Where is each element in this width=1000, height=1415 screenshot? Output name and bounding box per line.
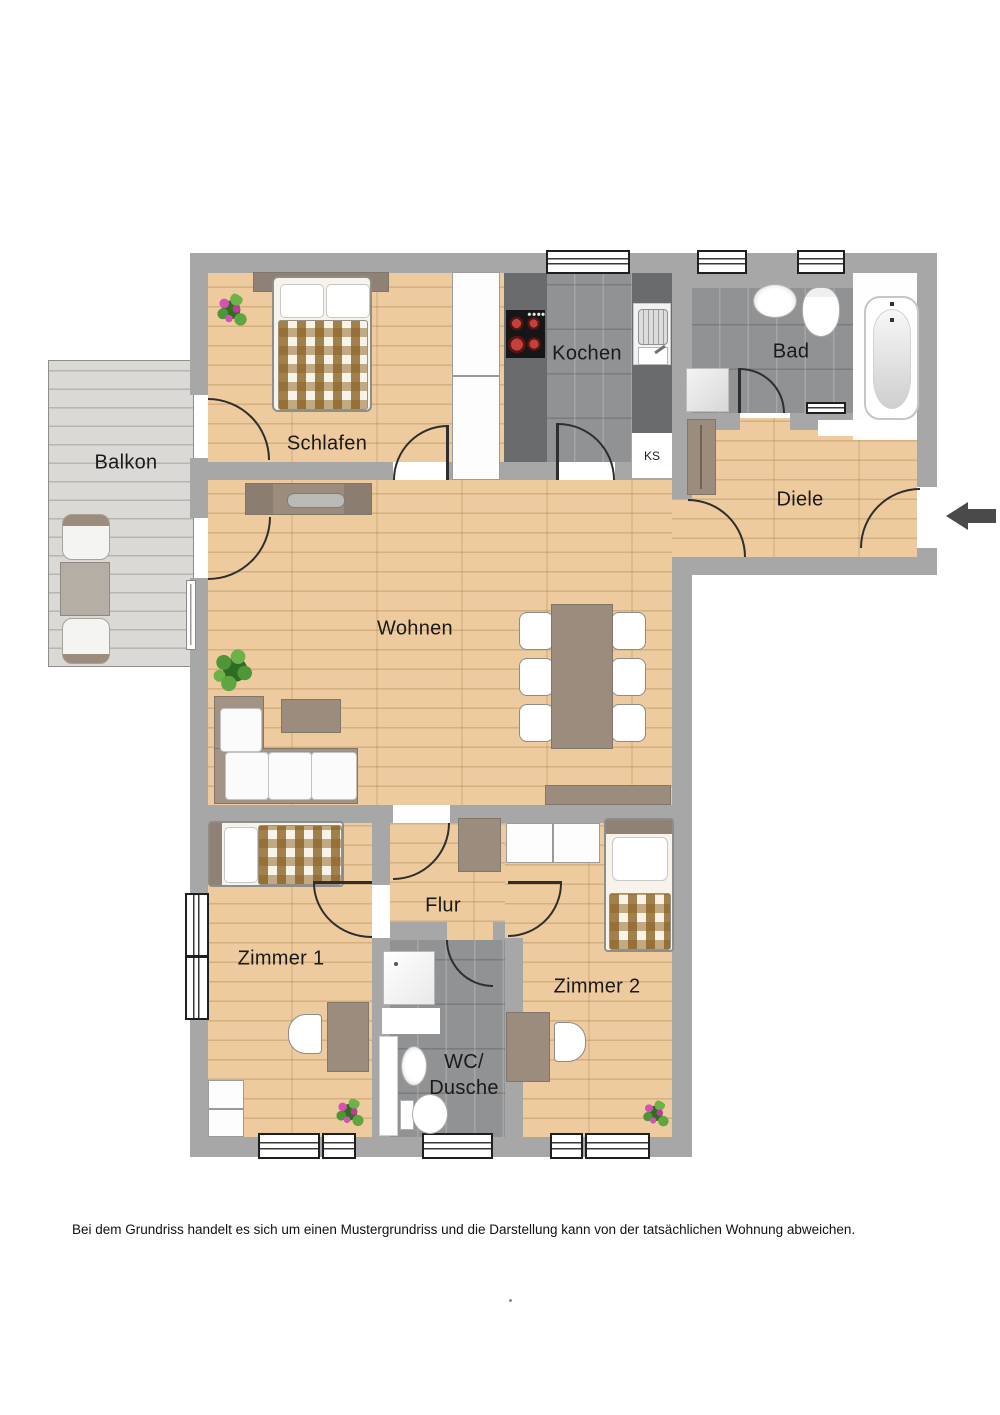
dining-chair xyxy=(519,658,554,696)
dining-chair xyxy=(519,612,554,650)
stove xyxy=(506,310,545,358)
entrance-arrow-icon xyxy=(946,502,996,530)
wall-left-a xyxy=(190,253,208,395)
door-leaf-schlafen xyxy=(446,425,449,480)
arrow-head xyxy=(946,502,968,530)
dining-chair xyxy=(611,658,646,696)
fridge: KS xyxy=(632,433,672,478)
room-label-wohnen: Wohnen xyxy=(377,618,453,641)
dining-table xyxy=(551,604,613,749)
door-leaf-zimmer1 xyxy=(313,881,372,884)
flur-cabinet xyxy=(458,818,501,872)
bed-blanket xyxy=(278,320,368,410)
stray-dot xyxy=(509,1299,512,1302)
fridge-label: KS xyxy=(644,449,660,463)
zimmer2-chair xyxy=(554,1022,586,1062)
bed-headboard xyxy=(606,820,672,834)
disclaimer-text: Bei dem Grundriss handelt es sich um ein… xyxy=(72,1222,855,1237)
schlafen-plant xyxy=(214,293,248,333)
room-label-zimmer2: Zimmer 2 xyxy=(554,976,641,999)
shower-drain xyxy=(394,962,398,966)
sink-drainboard xyxy=(638,309,668,345)
wall-wohnen-right xyxy=(672,557,692,1157)
sofa-cushion xyxy=(225,752,269,800)
bad-toilet xyxy=(802,287,840,337)
zimmer2-wardrobe xyxy=(506,823,600,863)
tv xyxy=(287,493,345,508)
zimmer1-plant xyxy=(333,1098,365,1132)
wall-left-d xyxy=(190,823,208,895)
bed-blanket xyxy=(609,893,671,950)
window-wc-bottom xyxy=(422,1133,493,1159)
coffee-table xyxy=(281,699,341,733)
bed-headboard xyxy=(210,823,222,885)
kitchen-counter-left xyxy=(504,273,547,462)
arrow-shaft xyxy=(968,509,996,523)
window-bad-left xyxy=(697,250,747,274)
balcony-chair-bottom xyxy=(62,618,110,664)
schlafen-wardrobe xyxy=(452,272,500,480)
door-leaf-bad xyxy=(738,368,741,413)
sofa-cushion xyxy=(220,708,262,752)
sofa-cushion xyxy=(311,752,357,800)
sink-basin xyxy=(638,347,668,365)
window-zimmer1-left-lower xyxy=(185,956,209,1020)
wc-shelf xyxy=(382,1008,440,1034)
sofa-cushion xyxy=(268,752,312,800)
wc-washbasin xyxy=(401,1046,427,1086)
entrance-gap xyxy=(917,487,937,548)
room-label-wc-line2: Dusche xyxy=(429,1075,499,1101)
window-zimmer1-bottom-a xyxy=(258,1133,320,1159)
tv-sideboard xyxy=(245,483,372,515)
single-bed-1 xyxy=(208,821,344,887)
bathtub-drain-dot xyxy=(890,302,894,306)
sideboard-end xyxy=(246,484,273,514)
shower xyxy=(383,951,435,1005)
window-kochen xyxy=(546,250,630,274)
room-label-wc: WC/ Dusche xyxy=(429,1049,499,1101)
kitchen-sink xyxy=(633,303,671,365)
balcony-table xyxy=(60,562,110,616)
wohnen-plant xyxy=(212,648,254,696)
diele-wardrobe xyxy=(687,419,716,495)
door-leaf-zimmer2 xyxy=(508,881,562,884)
room-label-wc-line1: WC/ xyxy=(429,1049,499,1075)
room-label-bad: Bad xyxy=(773,341,810,364)
wall-left-e xyxy=(190,1020,208,1137)
balcony-door-leaf xyxy=(186,580,196,650)
door-leaf-kochen xyxy=(556,423,559,480)
dining-chair xyxy=(519,704,554,742)
sideboard-end xyxy=(344,484,371,514)
room-label-diele: Diele xyxy=(776,489,823,512)
room-label-zimmer1: Zimmer 1 xyxy=(238,948,325,971)
room-label-kochen: Kochen xyxy=(552,343,622,366)
bad-washbasin xyxy=(753,284,797,318)
room-label-flur: Flur xyxy=(425,895,461,918)
balcony-flowers xyxy=(56,374,118,430)
wall-schlafen-south-a xyxy=(190,462,393,480)
zimmer2-desk xyxy=(506,1012,550,1082)
wall-diele-bottom xyxy=(672,557,937,575)
balcony-chair-top xyxy=(62,514,110,560)
window-zimmer1-left-upper xyxy=(185,893,209,957)
bad-cabinet xyxy=(686,368,729,412)
wohnen-sideboard xyxy=(545,785,671,805)
double-bed xyxy=(272,276,372,412)
dining-chair xyxy=(611,704,646,742)
pillow xyxy=(280,284,324,318)
bed-blanket xyxy=(258,825,342,885)
diele-niche xyxy=(818,420,914,436)
bathtub-basin xyxy=(873,309,911,409)
wc-radiator xyxy=(379,1036,398,1136)
window-bad-right xyxy=(797,250,845,274)
zimmer1-cabinet xyxy=(208,1080,244,1137)
pillow xyxy=(224,827,258,883)
single-bed-2 xyxy=(604,818,674,952)
room-label-balkon: Balkon xyxy=(95,452,158,475)
wall-right-upper xyxy=(917,253,937,487)
wall-wc-north-a xyxy=(390,922,447,940)
bathtub xyxy=(864,296,919,420)
window-zimmer1-bottom-b xyxy=(322,1133,356,1159)
wall-wc-north-b xyxy=(493,922,505,940)
zimmer2-plant xyxy=(640,1100,670,1132)
bad-radiator xyxy=(806,402,846,414)
zimmer1-desk xyxy=(327,1002,369,1072)
pillow xyxy=(326,284,370,318)
room-label-schlafen: Schlafen xyxy=(287,433,367,456)
window-zimmer2-bottom-b xyxy=(585,1133,650,1159)
bathtub-drain-dot xyxy=(890,318,894,322)
wall-zimmer1-flur-a xyxy=(372,823,390,885)
wardrobe-handle-line xyxy=(700,425,702,489)
dining-chair xyxy=(611,612,646,650)
window-zimmer2-bottom-a xyxy=(550,1133,583,1159)
floor-plan: KS xyxy=(0,0,1000,1415)
zimmer1-chair xyxy=(288,1014,322,1054)
pillow xyxy=(612,837,668,881)
